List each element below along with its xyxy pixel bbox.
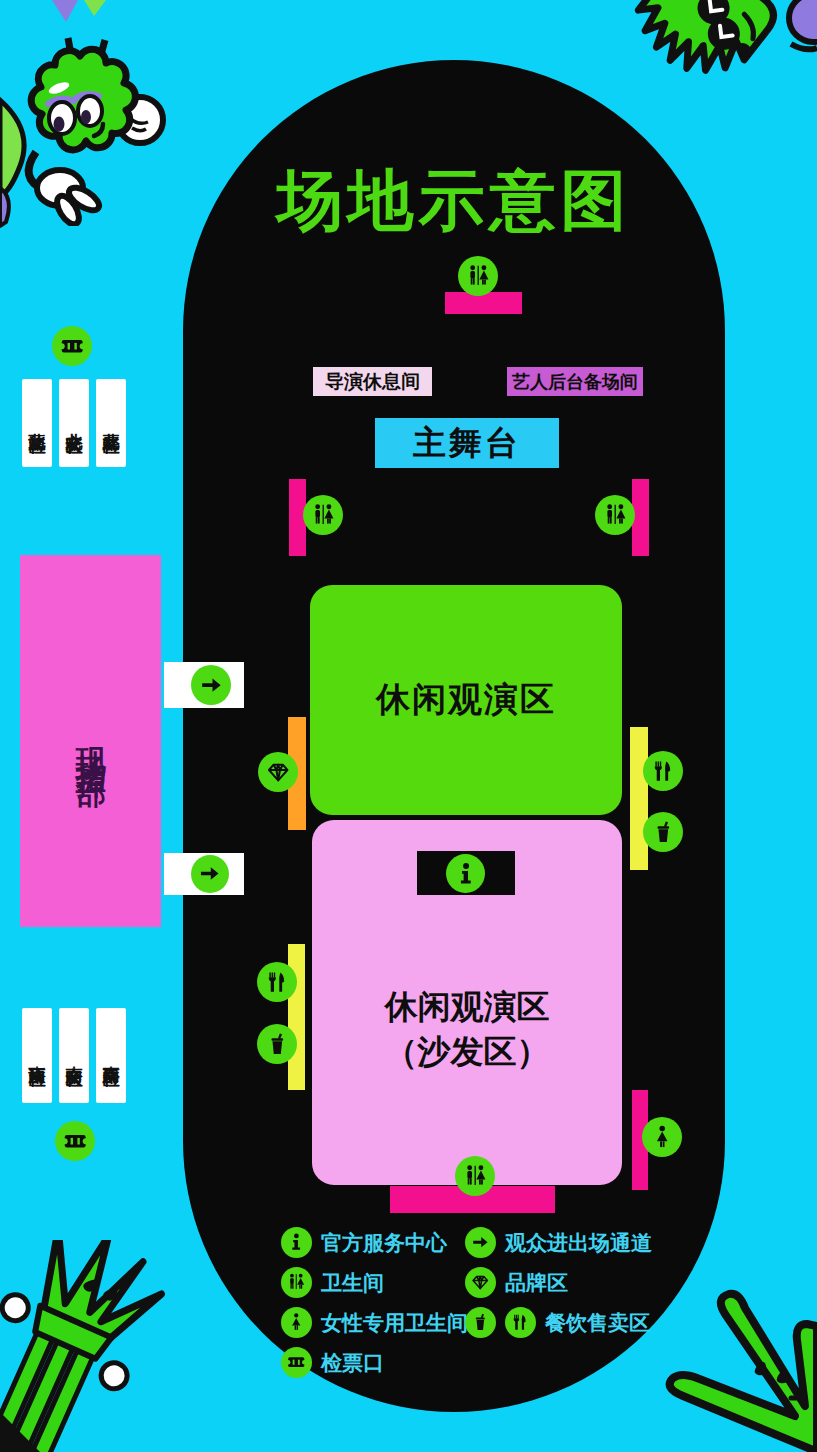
legend-label: 品牌区 bbox=[505, 1269, 568, 1297]
fork-knife-icon bbox=[257, 962, 297, 1002]
female-restroom-icon bbox=[281, 1307, 312, 1338]
leisure-viewing-zone: 休闲观演区 bbox=[310, 585, 622, 815]
corner-fragment-topright bbox=[785, 0, 817, 70]
legend-label: 卫生间 bbox=[321, 1269, 384, 1297]
main-stage-zone: 主舞台 bbox=[375, 418, 559, 468]
mascot-leaf-bottomright-illustration bbox=[645, 1278, 817, 1452]
legend-label: 女性专用卫生间 bbox=[321, 1309, 468, 1337]
female-restroom-icon bbox=[642, 1117, 682, 1157]
checkpoint-text: 北票检区 bbox=[100, 419, 123, 427]
restroom-icon bbox=[281, 1267, 312, 1298]
cup-icon bbox=[257, 1024, 297, 1064]
legend-item-food-area: 餐饮售卖区 bbox=[465, 1307, 650, 1338]
artist-backstage-text: 艺人后台备场间 bbox=[512, 370, 638, 394]
main-stage-text: 主舞台 bbox=[413, 421, 521, 466]
command-center-zone: 现场指挥部 bbox=[20, 555, 161, 927]
checkpoint-text: 南预检区 bbox=[26, 1052, 49, 1060]
ticket-icon bbox=[281, 1347, 312, 1378]
checkpoint-north-security: 北安检区 bbox=[59, 379, 89, 467]
food-area-bar-left bbox=[288, 944, 305, 1090]
legend-label: 观众进出场通道 bbox=[505, 1229, 652, 1257]
legend-label: 餐饮售卖区 bbox=[545, 1309, 650, 1337]
command-center-text: 现场指挥部 bbox=[70, 724, 111, 759]
checkpoint-text: 北安检区 bbox=[63, 419, 86, 427]
sofa-zone-text: 休闲观演区 （沙发区） bbox=[312, 985, 622, 1074]
legend-item-audience-channel: 观众进出场通道 bbox=[465, 1227, 652, 1258]
ticket-icon bbox=[52, 326, 92, 366]
corner-fragment-bottomleft bbox=[0, 1408, 44, 1452]
cup-icon bbox=[643, 812, 683, 852]
checkpoint-north-ticketcheck: 北票检区 bbox=[96, 379, 126, 467]
checkpoint-south-security: 南安检区 bbox=[59, 1008, 89, 1103]
artist-backstage-label: 艺人后台备场间 bbox=[507, 367, 643, 396]
legend-item-female-restroom: 女性专用卫生间 bbox=[281, 1307, 468, 1338]
leisure-viewing-text: 休闲观演区 bbox=[376, 677, 556, 723]
checkpoint-south-precheck: 南预检区 bbox=[22, 1008, 52, 1103]
fork-knife-icon bbox=[643, 751, 683, 791]
food-area-bar-right bbox=[630, 727, 648, 870]
legend-label: 官方服务中心 bbox=[321, 1229, 447, 1257]
legend-item-brand-area: 品牌区 bbox=[465, 1267, 568, 1298]
checkpoint-text: 南安检区 bbox=[63, 1052, 86, 1060]
checkpoint-text: 南票检区 bbox=[100, 1052, 123, 1060]
venue-map-poster: 场地示意图 导演休息间 艺人后台备场间 主舞台 休闲观演区 休闲观演区 （沙发区… bbox=[0, 0, 817, 1452]
director-lounge-text: 导演休息间 bbox=[325, 369, 420, 395]
top-restroom-bar bbox=[445, 292, 522, 314]
checkpoint-south-ticketcheck: 南票检区 bbox=[96, 1008, 126, 1103]
legend-item-service-center: 官方服务中心 bbox=[281, 1227, 447, 1258]
info-icon bbox=[281, 1227, 312, 1258]
legend-label: 检票口 bbox=[321, 1349, 384, 1377]
diamond-icon bbox=[465, 1267, 496, 1298]
legend-item-restroom: 卫生间 bbox=[281, 1267, 384, 1298]
restroom-icon bbox=[455, 1156, 495, 1196]
sofa-zone-line1: 休闲观演区 bbox=[312, 985, 622, 1030]
ticket-icon bbox=[55, 1121, 95, 1161]
arrow-icon bbox=[465, 1227, 496, 1258]
cup-icon bbox=[465, 1307, 496, 1338]
fork-knife-icon bbox=[505, 1307, 536, 1338]
arrow-icon bbox=[191, 665, 231, 705]
legend-item-ticket-gate: 检票口 bbox=[281, 1347, 384, 1378]
checkpoint-north-precheck: 北预检区 bbox=[22, 379, 52, 467]
director-lounge-label: 导演休息间 bbox=[313, 367, 432, 396]
restroom-icon bbox=[458, 256, 498, 296]
sofa-zone-line2: （沙发区） bbox=[312, 1030, 622, 1075]
arrow-icon bbox=[191, 855, 229, 893]
corner-fragment-left bbox=[0, 88, 34, 228]
corner-fragment-topleft bbox=[38, 0, 118, 22]
info-icon bbox=[446, 854, 485, 893]
checkpoint-text: 北预检区 bbox=[26, 419, 49, 427]
restroom-icon bbox=[303, 495, 343, 535]
restroom-icon bbox=[595, 495, 635, 535]
diamond-icon bbox=[258, 752, 298, 792]
